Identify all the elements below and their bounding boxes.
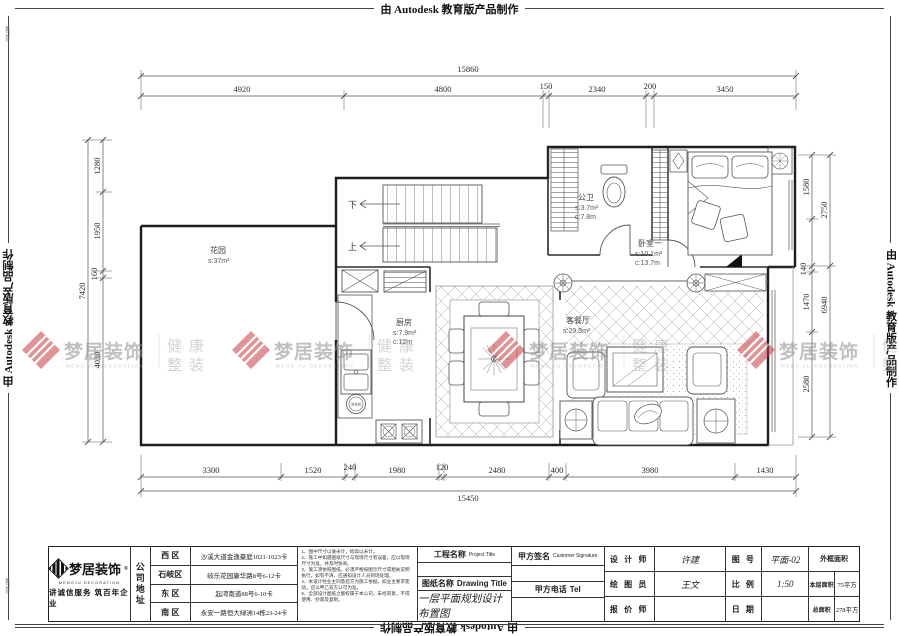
project-title-value [418,563,511,577]
district-label: 东 区 [151,585,191,603]
watermark-slogan: 健康 [632,338,676,355]
project-column: 工程名称 Project Title 图纸名称 Drawing Title 一层… [418,547,512,621]
project-title-label: 工程名称 [434,549,466,560]
address-row: 东 区 起湾南道88号6-10卡 [151,585,298,604]
dims-right: 1580 140 1470 2580 2750 6940 [798,152,836,440]
sheet-no: 平面-02 [762,547,808,571]
draftsman-name: 王文 [655,572,726,596]
district-address: 永安一路恒大绿洲14栋23-24卡 [191,603,298,621]
watermark-slogan: 健康 [882,338,899,355]
watermark-slogan: 整装 [882,357,899,374]
dim-label: 4800 [435,84,452,94]
kitchen-area: s:7.9m² [393,330,417,337]
watermark-slogan: 整装 [632,357,676,374]
stairs-up-label: 上 [348,242,357,252]
district-label: 西 区 [151,547,191,565]
district-address: 岐乐花园康华路8号6-12卡 [191,566,298,584]
watermark-brand-en: MENG JU DECORATION [531,364,609,369]
note-line: 4、本设计经业主同意后方为施工依据，如业主要求变动，应以甲乙双方认可为准。 [301,579,414,591]
dim-label: 2580 [801,376,811,393]
bedroom-area: s:10.1m² [635,251,663,258]
watermark-brand: 梦居装饰 [779,340,859,363]
logo-brand: 梦居装饰 [69,559,121,578]
dim-label: 4920 [234,84,251,94]
dims-left: 7420 1280 1950 160 4030 [77,137,112,445]
stairs: 下 上 [348,185,500,262]
logo-brand-en: MENGJU DECORATION [59,580,120,585]
watermark-slogan: 健康 [377,338,421,355]
bath-area: s:3.7m² [575,205,599,212]
address-table: 西 区 沙溪大道金逸豪庭1021-1023卡 石岐区 岐乐花园康华路8号6-12… [151,547,299,621]
drawing-title-en: Drawing Title [457,579,507,588]
designer-label: 设 计 师 [605,547,655,571]
watermark-brand: 梦居装饰 [64,340,144,363]
dim-label: 1470 [801,294,811,311]
floor-area-label: 本层面积 [809,572,835,596]
estimator-label: 报 价 师 [605,597,655,621]
dims-top: 15860 4920 4800 150 2340 200 3450 [138,64,799,128]
bedroom-name: 卧室一 [638,238,662,248]
living-area: s:29.5m² [563,328,591,335]
draftsman-label: 绘 图 员 [605,572,655,596]
staff-column: 设 计 师 许建 绘 图 员 王文 报 价 师 [605,547,727,621]
customer-tel-label: 甲方电话 [535,584,567,595]
floor-plan-svg: 下 上 洗衣机 [0,0,899,636]
scale-value: 1:50 [762,572,808,596]
living-name: 客餐厅 [566,315,590,325]
title-block: 梦居装饰 ® MENGJU DECORATION 讲诚信服务 筑百年企业 公司地… [48,546,860,622]
dim-label: 3300 [203,465,220,475]
dim-label: 160 [89,268,99,281]
dim-label: 240 [344,462,357,472]
dim-label: 200 [644,81,657,91]
section-marker [726,254,742,267]
area-column: 外框面积 本层面积 75平方 总面积 278平方 [809,547,859,621]
construction-notes: 1、图中尺寸以毫米计，标高以米计。 2、施工中如遇图纸尺寸与现场尺寸有误差，应以… [298,547,418,621]
garden-area: s:37m² [208,258,230,265]
customer-column: 甲方签名 Customer Signature 甲方电话 Tel [512,547,605,621]
kitchen-name: 厨房 [396,317,412,327]
watermark-brand: 梦居装饰 [529,340,609,363]
dim-label: 3450 [717,84,734,94]
customer-sign-label: 甲方签名 [518,551,550,562]
title-block-logo: 梦居装饰 ® MENGJU DECORATION 讲诚信服务 筑百年企业 [49,547,131,621]
washer-label: 洗衣机 [351,402,362,407]
watermark-brand-en: MENG JU DECORATION [66,364,144,369]
dim-label: 1280 [92,158,102,175]
scale-label: 比 例 [726,572,762,596]
dim-label: 3980 [642,465,659,475]
watermark-brand: 梦居装饰 [274,340,354,363]
watermark-slogan: 整装 [377,357,421,374]
logo-reg: ® [124,566,128,572]
dim-label: 140 [798,263,808,276]
dim-label: 120 [436,462,449,472]
dim-label: 1430 [757,465,774,475]
mengju-logo-icon [49,559,67,577]
dim-label: 2750 [819,202,829,219]
customer-tel-value [512,598,604,621]
estimator-name [655,597,726,621]
date-label: 日 期 [726,597,762,621]
dim-label: 1980 [389,465,406,475]
note-line: 3、施工须依照图纸，必须严格按图示尺寸或相关说明执行，如有不清，应通知设计人员到… [301,567,414,579]
total-area-label: 总面积 [809,597,835,621]
district-label: 南 区 [151,603,191,621]
designer-name: 许建 [655,547,726,571]
bedroom-perimeter: c:13.7m [635,260,660,267]
address-row: 石岐区 岐乐花园康华路8号6-12卡 [151,566,298,585]
floor-area-value: 75平方 [835,572,859,596]
cad-sheet: 由 Autodesk 教育版产品制作 由 Autodesk 教育版产品制作 由 … [0,0,899,636]
dim-label: 2480 [489,465,506,475]
note-line: 2、施工中如遇图纸尺寸与现场尺寸有误差，应以现场尺寸为准，并及时协商。 [301,555,414,567]
garden-name: 花园 [210,245,226,255]
total-area-value: 278平方 [835,597,859,621]
watermark: 梦居装饰 MENG JU DECORATION 健康 整装 [22,331,211,374]
address-row: 南 区 永安一路恒大绿洲14栋23-24卡 [151,603,298,621]
dim-label: 15860 [457,64,478,74]
bath-name: 公卫 [578,193,594,202]
customer-sign-en: Customer Signature [553,553,597,559]
logo-slogan: 讲诚信服务 筑百年企业 [49,587,130,609]
customer-signature-area [512,566,604,582]
district-address: 起湾南道88号6-10卡 [191,585,298,603]
dim-label: 15450 [457,493,478,503]
drawing-title-label: 图纸名称 [422,578,454,589]
address-row: 西 区 沙溪大道金逸豪庭1021-1023卡 [151,547,298,566]
watermark-brand-en: MENG JU DECORATION [781,364,859,369]
sheet-column: 图 号 平面-02 比 例 1:50 日 期 [726,547,809,621]
dim-label: 150 [540,81,553,91]
project-title-en: Project Title [469,552,495,558]
district-label: 石岐区 [151,566,191,584]
dim-label: 2340 [589,84,606,94]
watermark: 梦居装饰 MENG JU DECORATION 健康 整装 [232,331,421,374]
dim-label: 400 [551,465,564,475]
bedroom [652,148,792,255]
district-address: 沙溪大道金逸豪庭1021-1023卡 [191,547,298,565]
dim-label: 6940 [819,297,829,314]
customer-tel-en: Tel [570,585,581,594]
bath-perimeter: c:7.8m [575,214,596,221]
stairs-down-label: 下 [348,200,357,210]
watermark-slogan: 整装 [167,357,211,374]
dim-label: 1950 [92,223,102,240]
date-value [762,597,808,621]
watermark: 梦居装饰 MENG JU DECORATION 健康 整装 [737,331,899,374]
watermark-slogan: 健康 [167,338,211,355]
dim-label: 7420 [77,283,87,300]
company-address-label: 公司地址 [131,547,151,621]
dim-label: 1580 [801,179,811,196]
watermark-brand-en: MENG JU DECORATION [276,364,354,369]
drawing-title: 一层平面规划设计布置图 [418,591,511,621]
dims-bottom: 3300 1520 240 1980 120 2480 400 3980 143… [138,455,799,503]
sheet-no-label: 图 号 [726,547,762,571]
dim-label: 1520 [305,465,322,475]
note-line: 5、全部设计图纸之版权属于本公司，未经同意，不得使用、抄袭及复制。 [301,591,414,603]
area-header: 外框面积 [809,547,859,572]
